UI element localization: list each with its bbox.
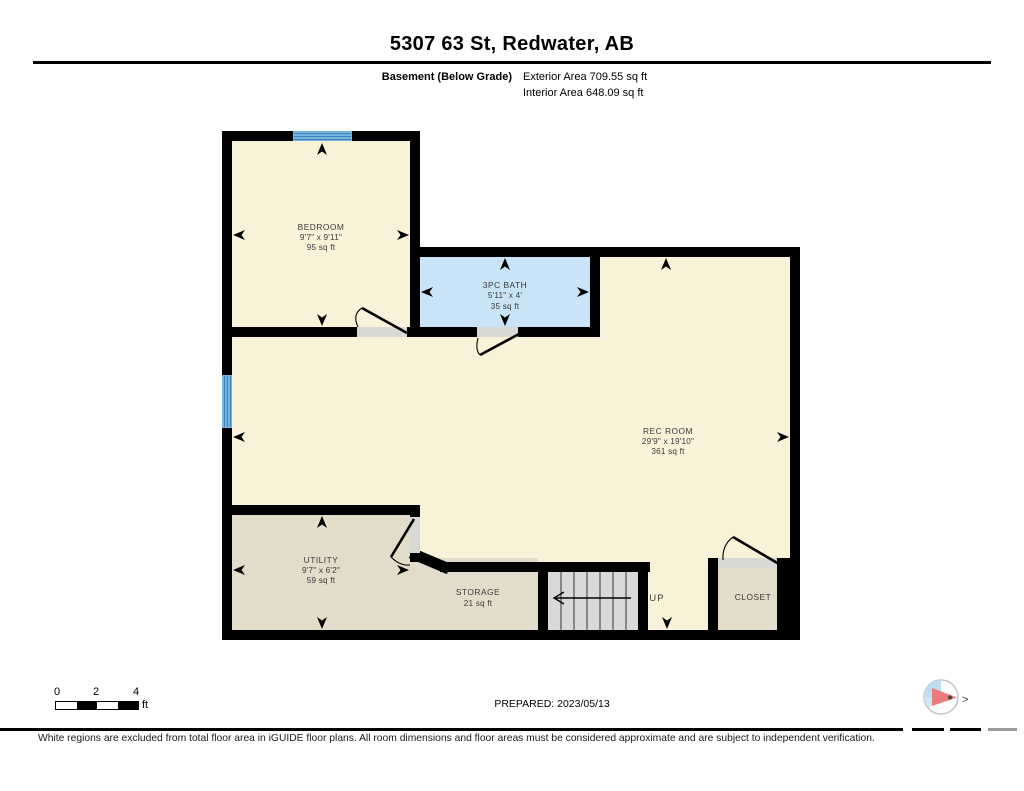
footer-divider-segment (988, 728, 1017, 731)
closet-door-opening (718, 558, 777, 568)
bath-dimensions: 5'11" x 4' (488, 291, 523, 300)
bath-area: 35 sq ft (491, 302, 520, 311)
bath-label: 3PC BATH (483, 280, 527, 290)
bedroom-area: 95 sq ft (307, 243, 336, 252)
floor-plan: BEDROOM 9'7" x 9'11" 95 sq ft 3PC BATH 5… (0, 0, 1024, 791)
rec-room-area: 361 sq ft (651, 447, 685, 456)
rec-room-label: REC ROOM (643, 426, 693, 436)
floorplan-page: 5307 63 St, Redwater, AB Basement (Below… (0, 0, 1024, 791)
footer-divider-segment (950, 728, 981, 731)
rec-room-window (222, 375, 232, 428)
scale-label-0: 0 (47, 686, 67, 698)
bath-door-opening (477, 327, 518, 337)
bedroom-window (293, 131, 352, 141)
stairs-up-label: UP (649, 593, 664, 603)
prepared-date: PREPARED: 2023/05/13 (432, 698, 672, 710)
bedroom-dimensions: 9'7" x 9'11" (300, 233, 342, 242)
scale-bar (55, 701, 139, 710)
footer-divider-segment (912, 728, 944, 731)
bedroom-label: BEDROOM (298, 222, 345, 232)
disclaimer-text: White regions are excluded from total fl… (38, 733, 998, 744)
compass-icon: > (924, 680, 968, 714)
utility-area: 59 sq ft (307, 576, 336, 585)
scale-unit: ft (142, 699, 148, 711)
closet-label: CLOSET (735, 592, 772, 602)
storage-area: 21 sq ft (464, 599, 493, 608)
scale-label-2: 2 (86, 686, 106, 698)
utility-dimensions: 9'7" x 6'2" (302, 566, 340, 575)
scale-label-4: 4 (126, 686, 146, 698)
rec-room-dimensions: 29'9" x 19'10" (642, 437, 694, 446)
footer-divider (0, 728, 903, 731)
storage-label: STORAGE (456, 587, 500, 597)
utility-label: UTILITY (304, 555, 339, 565)
north-marker: > (962, 694, 968, 706)
